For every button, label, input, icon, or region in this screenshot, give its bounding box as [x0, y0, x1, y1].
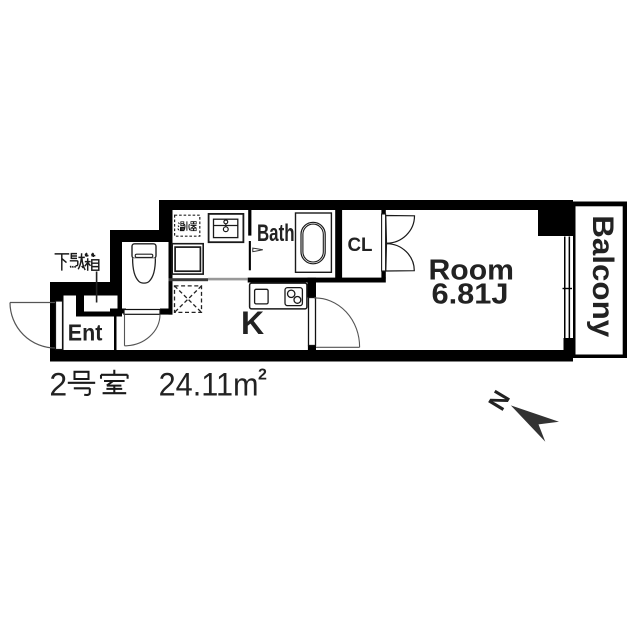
svg-text:Balcony: Balcony	[586, 215, 619, 337]
svg-text:24.11m: 24.11m	[159, 367, 259, 403]
svg-text:K: K	[241, 305, 264, 341]
svg-text:Ent: Ent	[68, 319, 103, 345]
svg-text:6.81J: 6.81J	[432, 279, 509, 311]
svg-text:Bath: Bath	[257, 220, 295, 247]
svg-text:2: 2	[49, 367, 67, 403]
svg-text:CL: CL	[348, 235, 373, 256]
svg-text:2: 2	[258, 367, 267, 384]
